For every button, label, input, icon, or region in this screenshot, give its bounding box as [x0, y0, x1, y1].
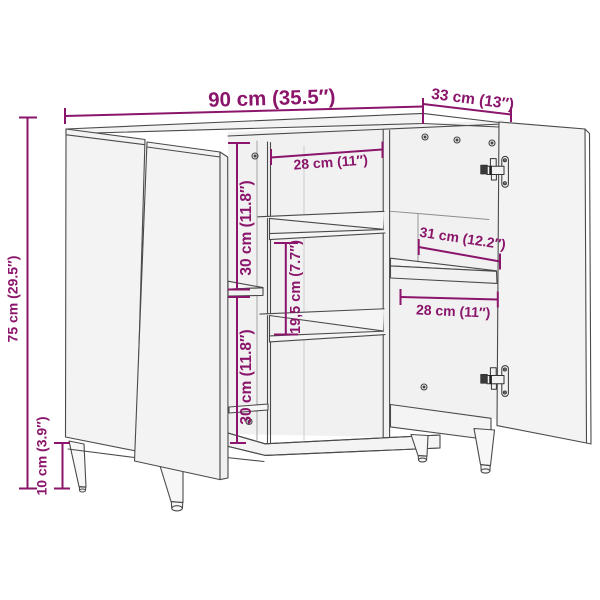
svg-text:19,5 cm (7.7″): 19,5 cm (7.7″) [288, 240, 304, 334]
svg-text:28 cm (11″): 28 cm (11″) [416, 301, 491, 320]
svg-text:75 cm (29.5″): 75 cm (29.5″) [5, 256, 21, 343]
svg-text:10 cm (3.9″): 10 cm (3.9″) [34, 416, 50, 495]
svg-text:90 cm (35.5″): 90 cm (35.5″) [208, 85, 336, 112]
svg-text:30 cm (11.8″): 30 cm (11.8″) [238, 180, 255, 275]
svg-text:30 cm (11.8″): 30 cm (11.8″) [238, 329, 255, 424]
